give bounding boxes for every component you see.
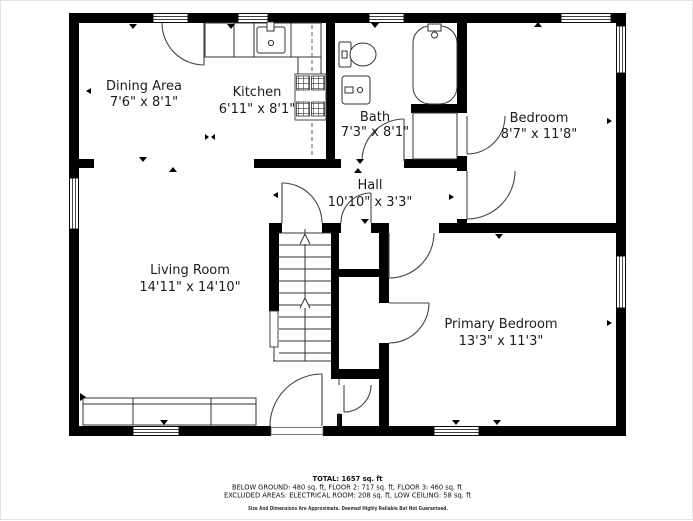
room-dims-bath: 7'3" x 8'1": [341, 125, 409, 140]
bathroom-sink-icon: [342, 76, 370, 104]
room-label-bedroom: Bedroom: [510, 111, 569, 126]
bedroom-closet-door: [467, 116, 505, 154]
window: [561, 14, 611, 23]
entry-closet-door: [344, 385, 371, 412]
window: [617, 26, 626, 73]
room-label-hall: Hall: [358, 178, 383, 193]
room-label-living: Living Room: [150, 263, 230, 278]
bathtub-icon: [413, 24, 457, 104]
stove-icon: [295, 74, 326, 120]
window: [617, 256, 626, 308]
floor-plan: Dining Area 7'6" x 8'1" Kitchen 6'11" x …: [1, 1, 693, 521]
entry-threshold: [271, 428, 323, 435]
entry-door: [270, 374, 322, 426]
window: [70, 178, 79, 229]
footer-excluded: EXCLUDED AREAS: ELECTRICAL ROOM: 208 sq.…: [224, 491, 471, 500]
floor-plan-page: Dining Area 7'6" x 8'1" Kitchen 6'11" x …: [0, 0, 693, 520]
window: [153, 14, 188, 23]
room-dims-living: 14'11" x 14'10": [139, 280, 240, 295]
window: [133, 427, 179, 436]
window: [434, 427, 479, 436]
window: [369, 14, 404, 23]
room-dims-hall: 10'10" x 3'3": [328, 195, 413, 210]
footer: TOTAL: 1657 sq. ft BELOW GROUND: 480 sq.…: [224, 474, 471, 512]
primary-closet-door: [389, 303, 429, 343]
staircase: [270, 229, 331, 361]
primary-bedroom-door: [389, 233, 434, 278]
room-dims-dining: 7'6" x 8'1": [110, 95, 178, 110]
bedroom-door: [467, 171, 515, 219]
bedroom-closet: [413, 113, 457, 159]
window: [238, 14, 268, 23]
room-dims-bedroom: 8'7" x 11'8": [501, 127, 577, 142]
stair-up-arrow: [300, 298, 310, 308]
room-dims-kitchen: 6'11" x 8'1": [219, 102, 295, 117]
stair-door: [282, 183, 322, 223]
sofa-icon: [83, 398, 256, 425]
room-label-dining: Dining Area: [106, 79, 182, 94]
room-dims-primary: 13'3" x 11'3": [459, 334, 544, 349]
stair-railing: [270, 311, 278, 347]
dining-kitchen-door: [162, 23, 204, 65]
room-labels: Dining Area 7'6" x 8'1" Kitchen 6'11" x …: [106, 79, 577, 349]
room-label-bath: Bath: [360, 110, 390, 125]
footer-disclaimer: Size And Dimensions Are Approximate. Dee…: [248, 506, 448, 512]
kitchen-sink-icon: [257, 22, 285, 53]
stair-up-arrow: [300, 234, 310, 244]
room-label-primary: Primary Bedroom: [444, 317, 557, 332]
toilet-icon: [339, 42, 376, 67]
room-label-kitchen: Kitchen: [233, 85, 282, 100]
